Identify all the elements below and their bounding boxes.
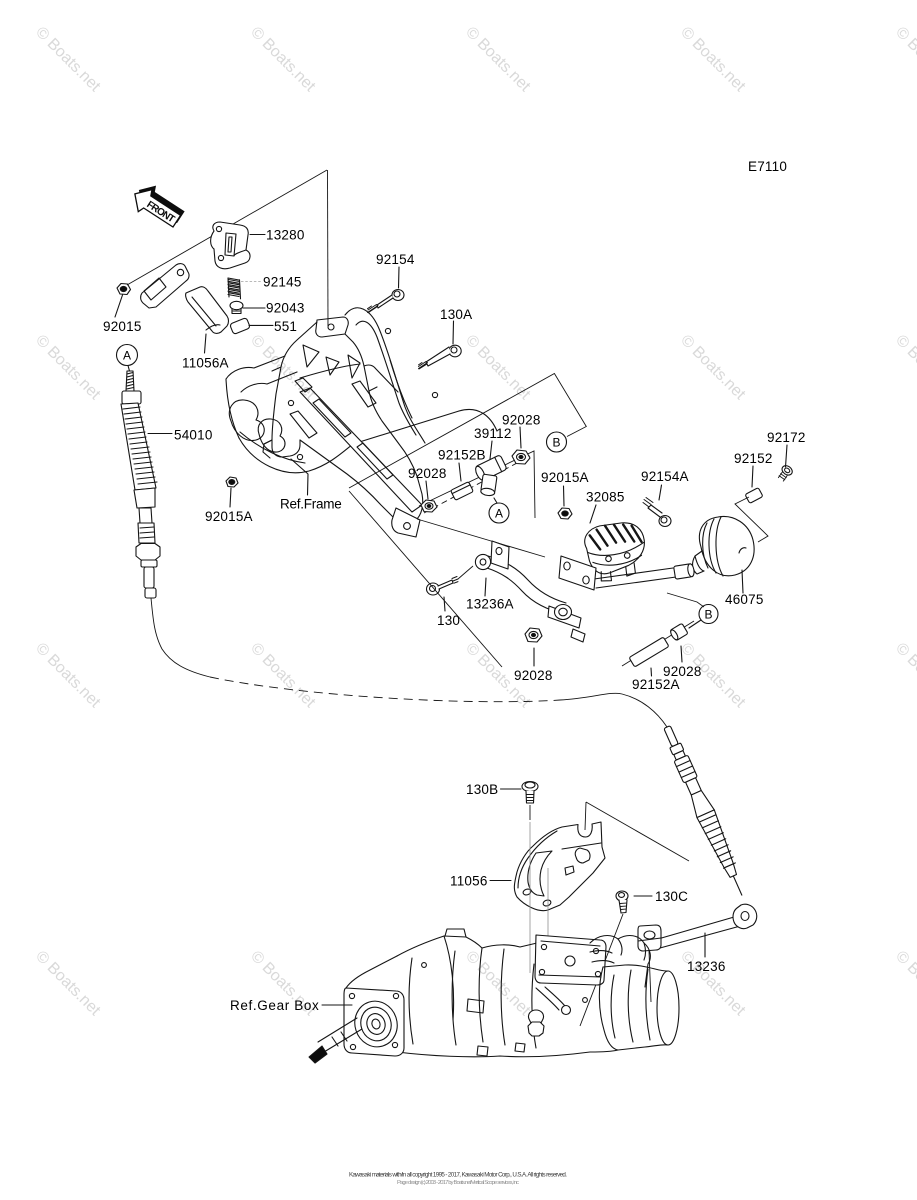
svg-text:92172: 92172 bbox=[767, 430, 806, 445]
svg-text:32085: 32085 bbox=[586, 490, 625, 505]
svg-text:92152B: 92152B bbox=[438, 448, 486, 463]
svg-text:130C: 130C bbox=[655, 889, 688, 904]
svg-text:92043: 92043 bbox=[266, 301, 305, 316]
svg-text:11056: 11056 bbox=[450, 874, 488, 889]
svg-text:11056A: 11056A bbox=[182, 356, 229, 371]
svg-text:92015A: 92015A bbox=[541, 470, 589, 485]
svg-text:46075: 46075 bbox=[725, 592, 764, 607]
svg-text:92028: 92028 bbox=[502, 413, 541, 428]
svg-text:Page design (c) 2003 - 2017 by: Page design (c) 2003 - 2017 by Boats.net… bbox=[397, 1180, 519, 1186]
svg-text:92015: 92015 bbox=[103, 319, 142, 334]
svg-text:130B: 130B bbox=[466, 782, 498, 797]
svg-text:13280: 13280 bbox=[266, 228, 305, 243]
svg-text:A: A bbox=[495, 507, 503, 521]
svg-text:B: B bbox=[552, 436, 560, 450]
svg-text:39112: 39112 bbox=[474, 426, 512, 441]
svg-text:E7110: E7110 bbox=[748, 159, 787, 174]
svg-text:Ref.Frame: Ref.Frame bbox=[280, 497, 342, 512]
svg-text:B: B bbox=[704, 608, 712, 622]
svg-text:92154A: 92154A bbox=[641, 469, 689, 484]
svg-text:54010: 54010 bbox=[174, 428, 213, 443]
svg-text:13236A: 13236A bbox=[466, 597, 514, 612]
svg-text:A: A bbox=[123, 349, 131, 363]
svg-text:130A: 130A bbox=[440, 307, 472, 322]
svg-text:130: 130 bbox=[437, 613, 460, 628]
svg-text:551: 551 bbox=[274, 319, 297, 334]
svg-text:92152A: 92152A bbox=[632, 677, 680, 692]
svg-text:92028: 92028 bbox=[514, 668, 553, 683]
svg-text:92152: 92152 bbox=[734, 451, 773, 466]
svg-text:92145: 92145 bbox=[263, 275, 302, 290]
svg-text:92015A: 92015A bbox=[205, 509, 253, 524]
svg-text:92154: 92154 bbox=[376, 252, 415, 267]
svg-text:92028: 92028 bbox=[408, 466, 447, 481]
svg-text:Kawasaki materials with/in all: Kawasaki materials with/in all copyright… bbox=[349, 1172, 567, 1179]
